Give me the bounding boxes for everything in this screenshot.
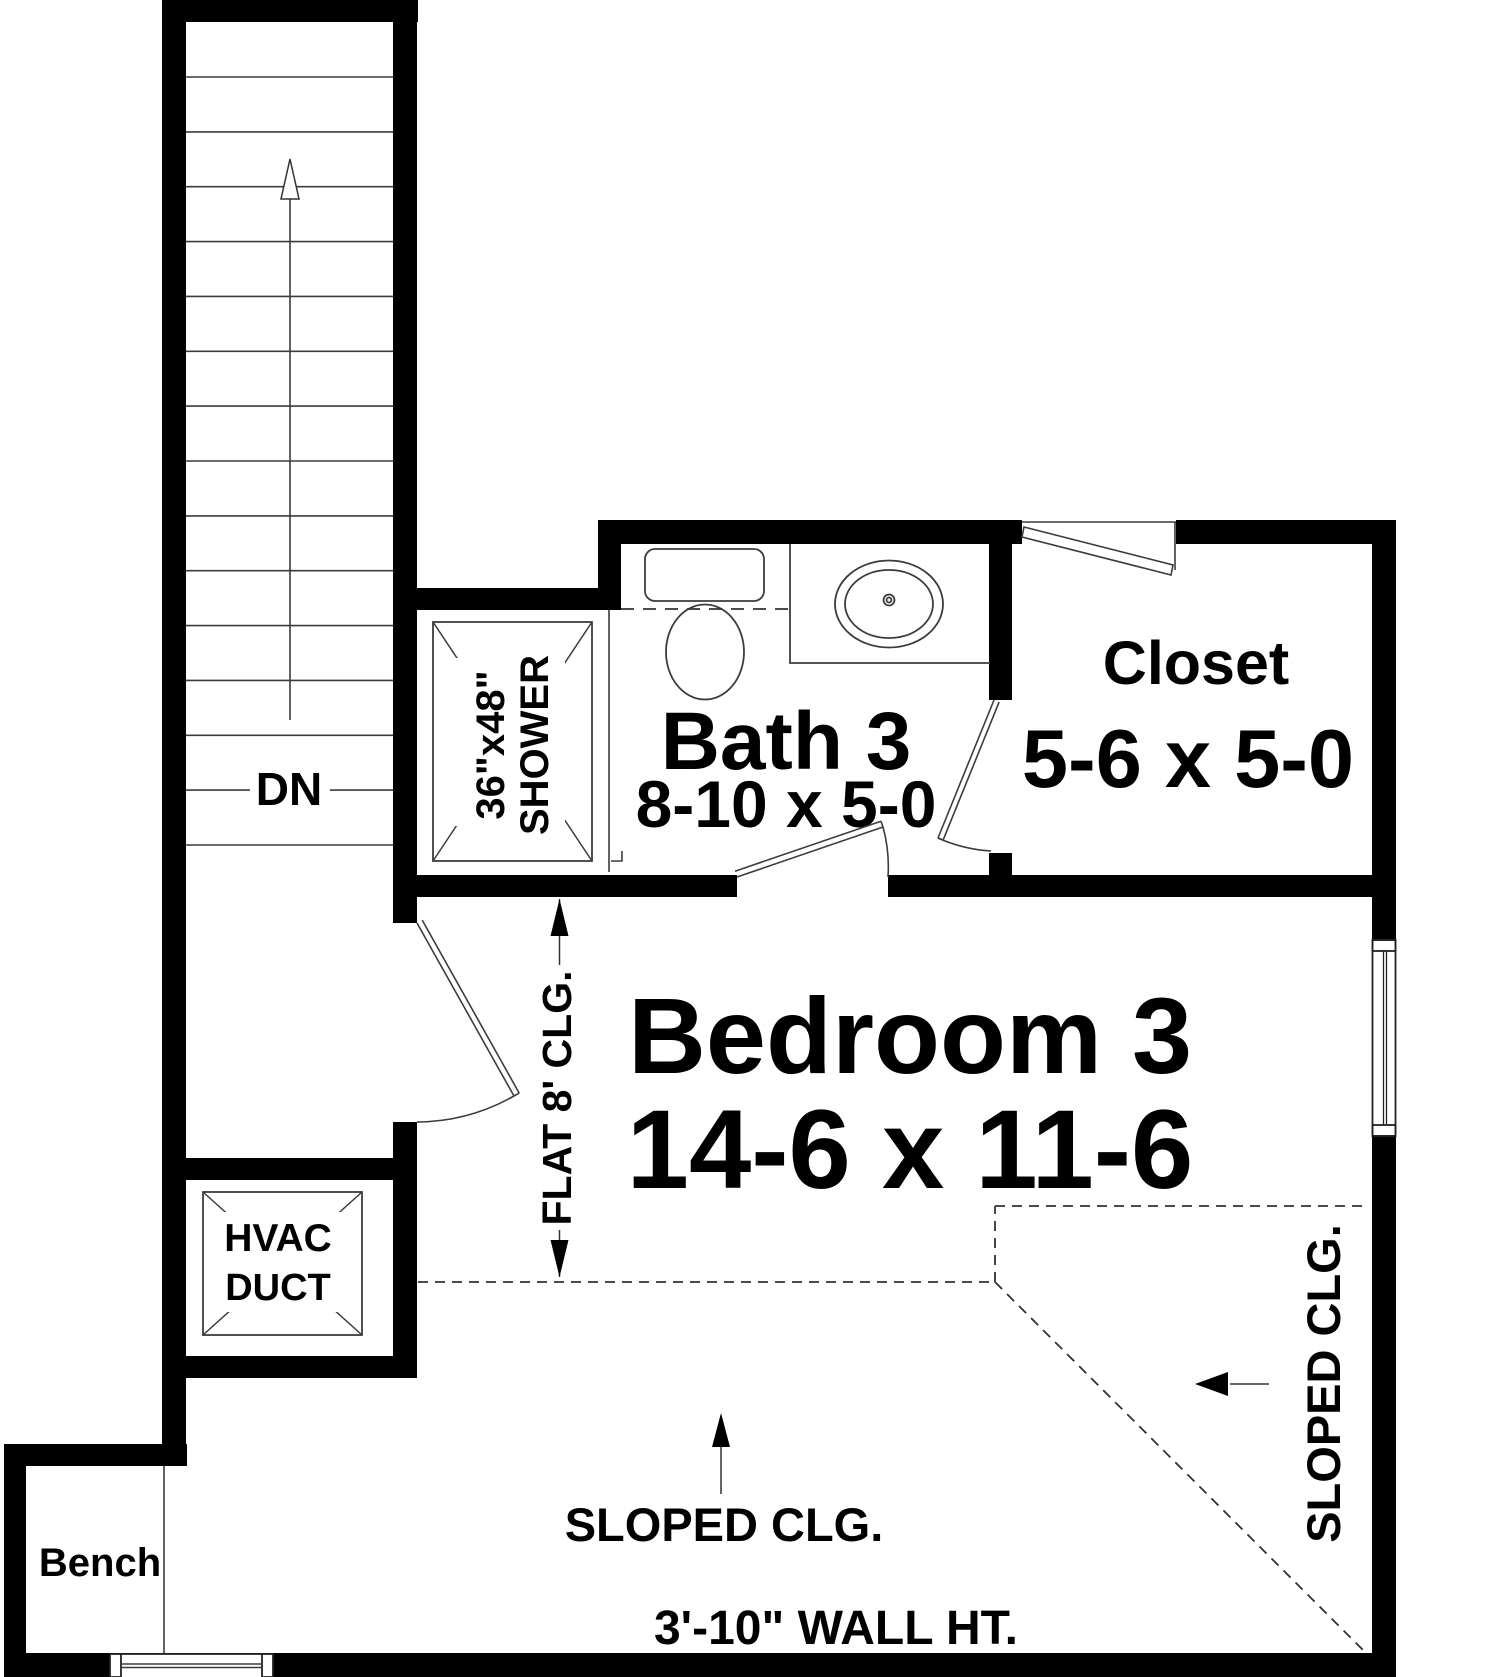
svg-text:DUCT: DUCT bbox=[225, 1267, 331, 1309]
svg-text:5-6 x 5-0: 5-6 x 5-0 bbox=[1022, 712, 1354, 805]
svg-text:DN: DN bbox=[256, 763, 322, 815]
svg-text:3'-10" WALL HT.: 3'-10" WALL HT. bbox=[654, 1602, 1018, 1655]
svg-text:Bedroom 3: Bedroom 3 bbox=[628, 975, 1192, 1096]
svg-text:8-10 x 5-0: 8-10 x 5-0 bbox=[636, 767, 937, 841]
svg-text:36"x48": 36"x48" bbox=[469, 670, 513, 819]
svg-text:Closet: Closet bbox=[1103, 629, 1289, 697]
svg-text:SLOPED CLG.: SLOPED CLG. bbox=[565, 1498, 884, 1551]
svg-text:SLOPED CLG.: SLOPED CLG. bbox=[1297, 1224, 1350, 1543]
svg-text:SHOWER: SHOWER bbox=[513, 655, 557, 835]
svg-text:HVAC: HVAC bbox=[224, 1217, 332, 1260]
svg-text:Bench: Bench bbox=[39, 1541, 161, 1585]
svg-text:14-6 x 11-6: 14-6 x 11-6 bbox=[627, 1087, 1194, 1212]
svg-text:FLAT 8' CLG.: FLAT 8' CLG. bbox=[534, 971, 580, 1226]
